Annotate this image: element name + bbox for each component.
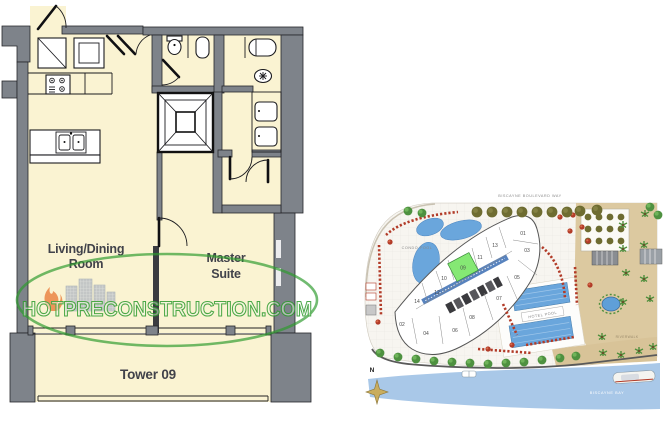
unit-label-04: 04 bbox=[423, 331, 429, 337]
entry-closet bbox=[74, 38, 104, 68]
unit-label-11: 11 bbox=[477, 255, 482, 261]
watermark-text: HOTPRECONSTRUCTION.COM bbox=[22, 298, 312, 321]
unit-label-06: 06 bbox=[452, 328, 458, 334]
small-boat bbox=[462, 371, 476, 377]
bay-label: BISCAYNE BAY bbox=[590, 391, 625, 395]
site-plan: CONDO POOL HOTEL POOL bbox=[360, 187, 664, 423]
east-stairs bbox=[640, 249, 662, 264]
unit-label-14: 14 bbox=[414, 299, 420, 305]
living-dining-label-line1: Living/Dining bbox=[48, 242, 125, 256]
cabanas bbox=[366, 283, 376, 315]
balcony-column-left bbox=[10, 333, 35, 402]
toilet bbox=[168, 40, 181, 55]
floor-plan: Living/Dining Room Master Suite Tower 09 bbox=[0, 0, 332, 423]
pergola bbox=[592, 251, 618, 265]
kitchen-island-sink bbox=[30, 130, 100, 163]
unit-label-07: 07 bbox=[496, 296, 502, 302]
balcony-column-right bbox=[271, 333, 311, 402]
riverwalk-label: RIVERWALK bbox=[616, 335, 639, 339]
unit-label-10: 10 bbox=[441, 276, 447, 282]
compass-n-label: N bbox=[370, 367, 375, 374]
balcony-label: Tower 09 bbox=[120, 367, 176, 382]
toilet-2 bbox=[249, 39, 276, 56]
unit-label-13: 13 bbox=[492, 243, 498, 249]
unit-label-08: 08 bbox=[469, 315, 475, 321]
street-label: BISCAYNE BOULEVARD WAY bbox=[498, 194, 561, 198]
bay-water bbox=[368, 363, 660, 410]
unit-label-02: 02 bbox=[399, 322, 405, 328]
unit-label-05: 05 bbox=[514, 275, 520, 281]
condo-pool-label: CONDO POOL bbox=[402, 246, 433, 250]
unit-label-09: 09 bbox=[460, 266, 466, 272]
kitchen-stove bbox=[46, 75, 70, 94]
unit-label-03: 03 bbox=[524, 248, 530, 254]
pedestal-sink bbox=[196, 37, 209, 58]
laundry-closet bbox=[38, 38, 66, 68]
page: Living/Dining Room Master Suite Tower 09 bbox=[0, 0, 664, 423]
walk-in-shower bbox=[158, 93, 213, 152]
master-suite-label-line2: Suite bbox=[211, 267, 241, 281]
unit-label-01: 01 bbox=[520, 231, 526, 237]
unit-label-12: 12 bbox=[434, 290, 440, 296]
